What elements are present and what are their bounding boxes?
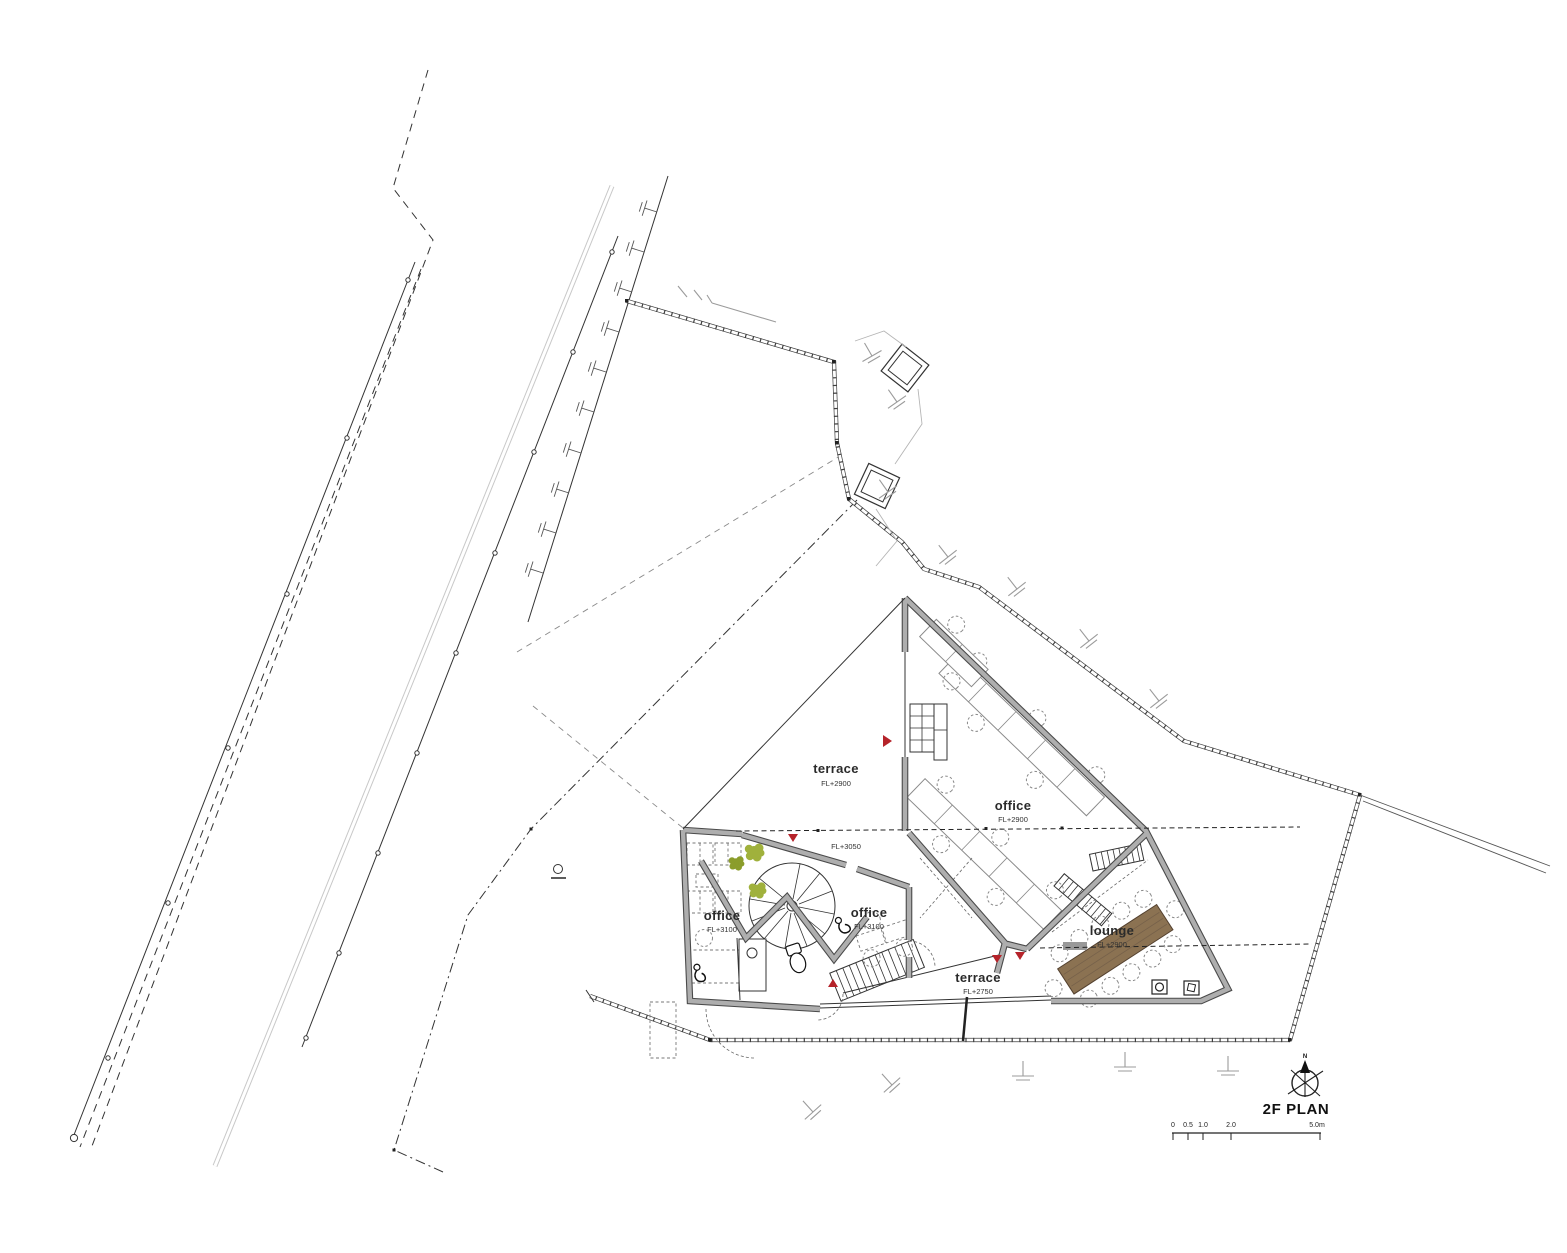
boundary-line-west bbox=[72, 262, 415, 1140]
floor-plan-page: terrace FL+2900 office FL+2900 office FL… bbox=[0, 0, 1567, 1253]
setback-line-dashdot bbox=[394, 500, 857, 1172]
slope-hatch-marks bbox=[524, 199, 659, 580]
appliance-icons bbox=[1152, 980, 1199, 995]
access-line-1 bbox=[517, 456, 840, 652]
scale-tick-05: 0.5 bbox=[1183, 1122, 1193, 1129]
terrace-edge bbox=[683, 598, 905, 829]
wc-fixtures bbox=[737, 938, 808, 1000]
lounge-bench bbox=[1063, 942, 1087, 950]
room-label-office-west: office bbox=[704, 908, 740, 923]
title-block: N 2F PLAN 0 0.5 1.0 2.0 5.0m bbox=[1171, 1054, 1329, 1140]
utility-pole-symbol bbox=[551, 865, 566, 879]
floor-plan-drawing: terrace FL+2900 office FL+2900 office FL… bbox=[0, 0, 1567, 1253]
room-label-office-mid: office bbox=[851, 905, 887, 920]
apex-stair bbox=[910, 704, 947, 760]
room-level-lounge: FL+2900 bbox=[1097, 940, 1127, 949]
tree-icon bbox=[745, 844, 765, 862]
plan-title: 2F PLAN bbox=[1263, 1101, 1330, 1118]
boundary-line-southeast bbox=[1360, 795, 1550, 873]
property-line-dashed bbox=[92, 70, 433, 1146]
room-label-office-ne: office bbox=[995, 798, 1031, 813]
person-icon bbox=[833, 915, 851, 935]
planter-diamond-2 bbox=[854, 463, 899, 508]
room-label-terrace-lower: terrace bbox=[955, 970, 1000, 985]
north-compass-icon: N bbox=[1288, 1054, 1323, 1097]
room-level-terrace-lower: FL+2750 bbox=[963, 987, 993, 996]
scale-tick-10: 1.0 bbox=[1198, 1122, 1208, 1129]
slope-line bbox=[528, 176, 668, 622]
scale-tick-50: 5.0m bbox=[1309, 1122, 1325, 1129]
tree-icon bbox=[749, 882, 767, 898]
scale-bar: 0 0.5 1.0 2.0 5.0m bbox=[1171, 1122, 1325, 1140]
access-line-2 bbox=[533, 706, 683, 828]
room-level-office-mid: FL+3100 bbox=[854, 922, 884, 931]
room-label-terrace-upper: terrace bbox=[813, 761, 858, 776]
room-level-office-west: FL+3100 bbox=[707, 925, 737, 934]
tree-icon bbox=[729, 856, 745, 870]
person-icon bbox=[692, 963, 706, 983]
boundary-line-posts bbox=[302, 236, 618, 1047]
north-label: N bbox=[1303, 1054, 1307, 1060]
site-fence-east bbox=[1290, 795, 1360, 1040]
deck-edge bbox=[820, 1000, 1051, 1008]
planter-diamond-1 bbox=[881, 344, 929, 392]
scale-tick-20: 2.0 bbox=[1226, 1122, 1236, 1129]
datum-label: FL+3050 bbox=[831, 842, 861, 851]
scale-tick-0: 0 bbox=[1171, 1122, 1175, 1129]
room-label-lounge: lounge bbox=[1090, 923, 1134, 938]
datum-line-1 bbox=[736, 827, 1300, 831]
room-level-terrace-upper: FL+2900 bbox=[821, 779, 851, 788]
room-level-office-ne: FL+2900 bbox=[998, 815, 1028, 824]
